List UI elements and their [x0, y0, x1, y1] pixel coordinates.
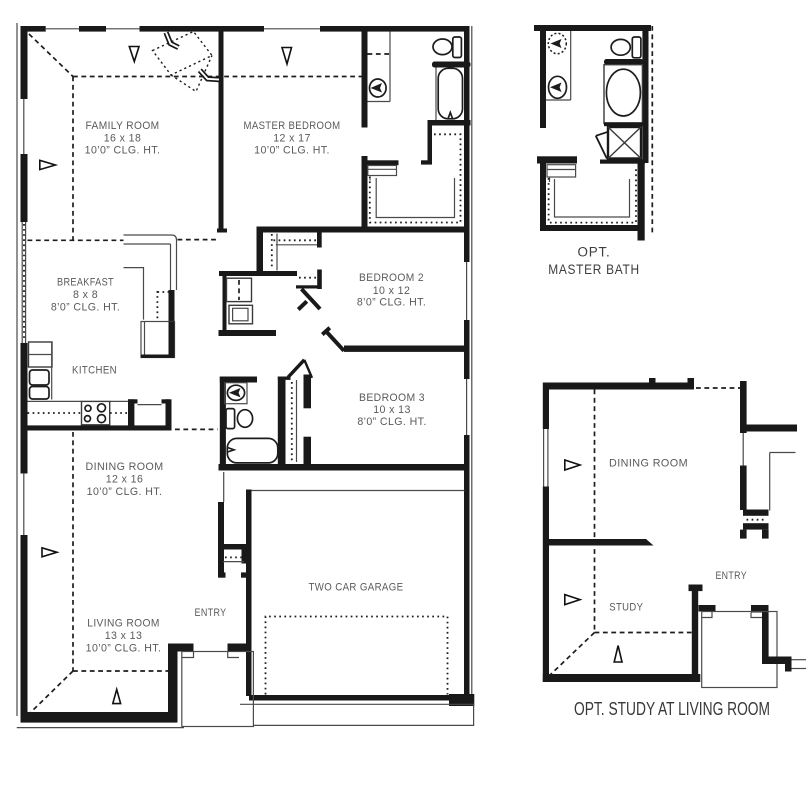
svg-text:BEDROOM 3: BEDROOM 3	[359, 392, 425, 404]
svg-text:OPT.: OPT.	[578, 245, 611, 260]
svg-text:10 x 13: 10 x 13	[373, 404, 411, 416]
svg-text:13 x 13: 13 x 13	[105, 630, 143, 642]
svg-text:12 x 16: 12 x 16	[106, 474, 144, 486]
svg-text:16 x 18: 16 x 18	[104, 132, 142, 144]
svg-text:KITCHEN: KITCHEN	[72, 365, 117, 377]
svg-text:10’0” CLG. HT.: 10’0” CLG. HT.	[86, 643, 162, 655]
svg-text:BEDROOM 2: BEDROOM 2	[359, 272, 424, 284]
svg-text:8’0” CLG. HT.: 8’0” CLG. HT.	[357, 416, 426, 428]
svg-text:STUDY: STUDY	[609, 602, 643, 614]
svg-text:MASTER BEDROOM: MASTER BEDROOM	[244, 120, 341, 132]
svg-text:10’0” CLG. HT.: 10’0” CLG. HT.	[85, 144, 161, 156]
svg-text:DINING ROOM: DINING ROOM	[609, 458, 688, 470]
svg-text:OPT. STUDY AT LIVING ROOM: OPT. STUDY AT LIVING ROOM	[574, 699, 770, 719]
svg-text:10’0” CLG. HT.: 10’0” CLG. HT.	[254, 144, 330, 156]
svg-text:MASTER BATH: MASTER BATH	[548, 262, 640, 277]
svg-text:12 x 17: 12 x 17	[273, 132, 311, 144]
svg-text:TWO CAR GARAGE: TWO CAR GARAGE	[309, 582, 404, 594]
svg-text:10’0” CLG. HT.: 10’0” CLG. HT.	[87, 486, 163, 498]
svg-text:10 x 12: 10 x 12	[373, 285, 411, 297]
svg-text:ENTRY: ENTRY	[195, 607, 227, 619]
svg-text:FAMILY ROOM: FAMILY ROOM	[86, 120, 160, 132]
svg-text:BREAKFAST: BREAKFAST	[57, 277, 114, 289]
svg-text:8 x 8: 8 x 8	[73, 289, 98, 301]
svg-text:8’0” CLG. HT.: 8’0” CLG. HT.	[51, 302, 120, 314]
svg-text:8’0” CLG. HT.: 8’0” CLG. HT.	[357, 296, 426, 308]
svg-text:DINING ROOM: DINING ROOM	[86, 461, 164, 473]
svg-text:LIVING ROOM: LIVING ROOM	[87, 618, 160, 630]
svg-text:ENTRY: ENTRY	[715, 570, 747, 582]
